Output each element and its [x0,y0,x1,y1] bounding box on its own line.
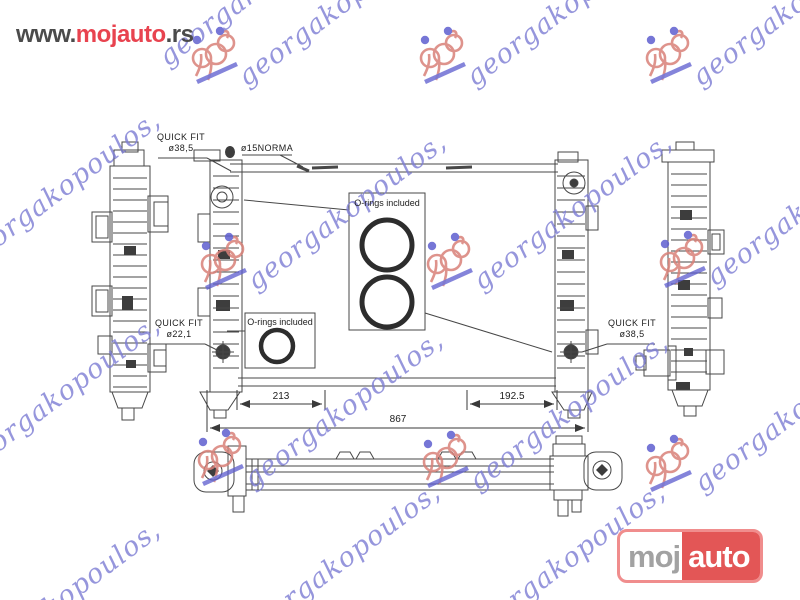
right-side-view [636,142,724,416]
oring-boxes [227,193,552,368]
product-image: georgakopoulos,georgakopoulos,georgakopo… [0,0,800,600]
bottom-view [194,436,622,516]
radiator-technical-drawing [0,0,800,600]
left-side-view [92,142,168,420]
dimension-lines [207,390,588,432]
